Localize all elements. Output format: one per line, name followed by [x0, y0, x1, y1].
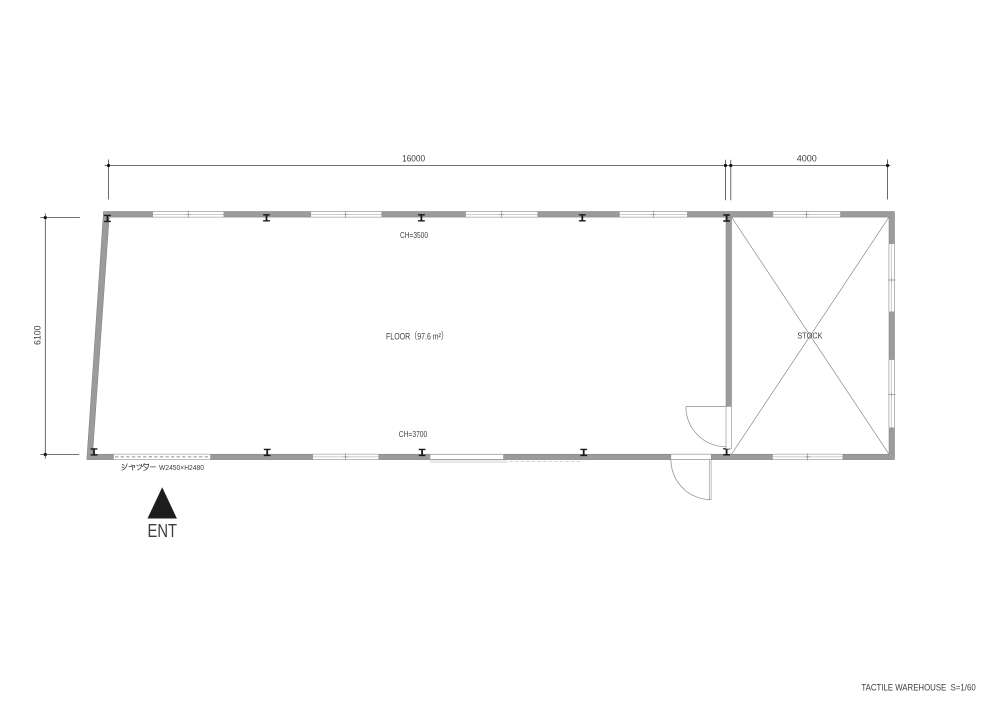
svg-text:CH=3700: CH=3700: [399, 430, 428, 439]
svg-text:STOCK: STOCK: [797, 331, 822, 341]
svg-text:TACTILE WAREHOUSE S=1/60: TACTILE WAREHOUSE S=1/60: [861, 682, 975, 693]
svg-text:6100: 6100: [32, 325, 43, 345]
svg-text:16000: 16000: [402, 154, 425, 165]
svg-text:FLOOR（97.6 m²）: FLOOR（97.6 m²）: [386, 330, 448, 342]
svg-text:4000: 4000: [797, 154, 817, 165]
svg-text:W2450×H2480: W2450×H2480: [159, 463, 204, 472]
svg-text:CH=3500: CH=3500: [400, 231, 428, 240]
svg-text:ENT: ENT: [148, 520, 178, 541]
